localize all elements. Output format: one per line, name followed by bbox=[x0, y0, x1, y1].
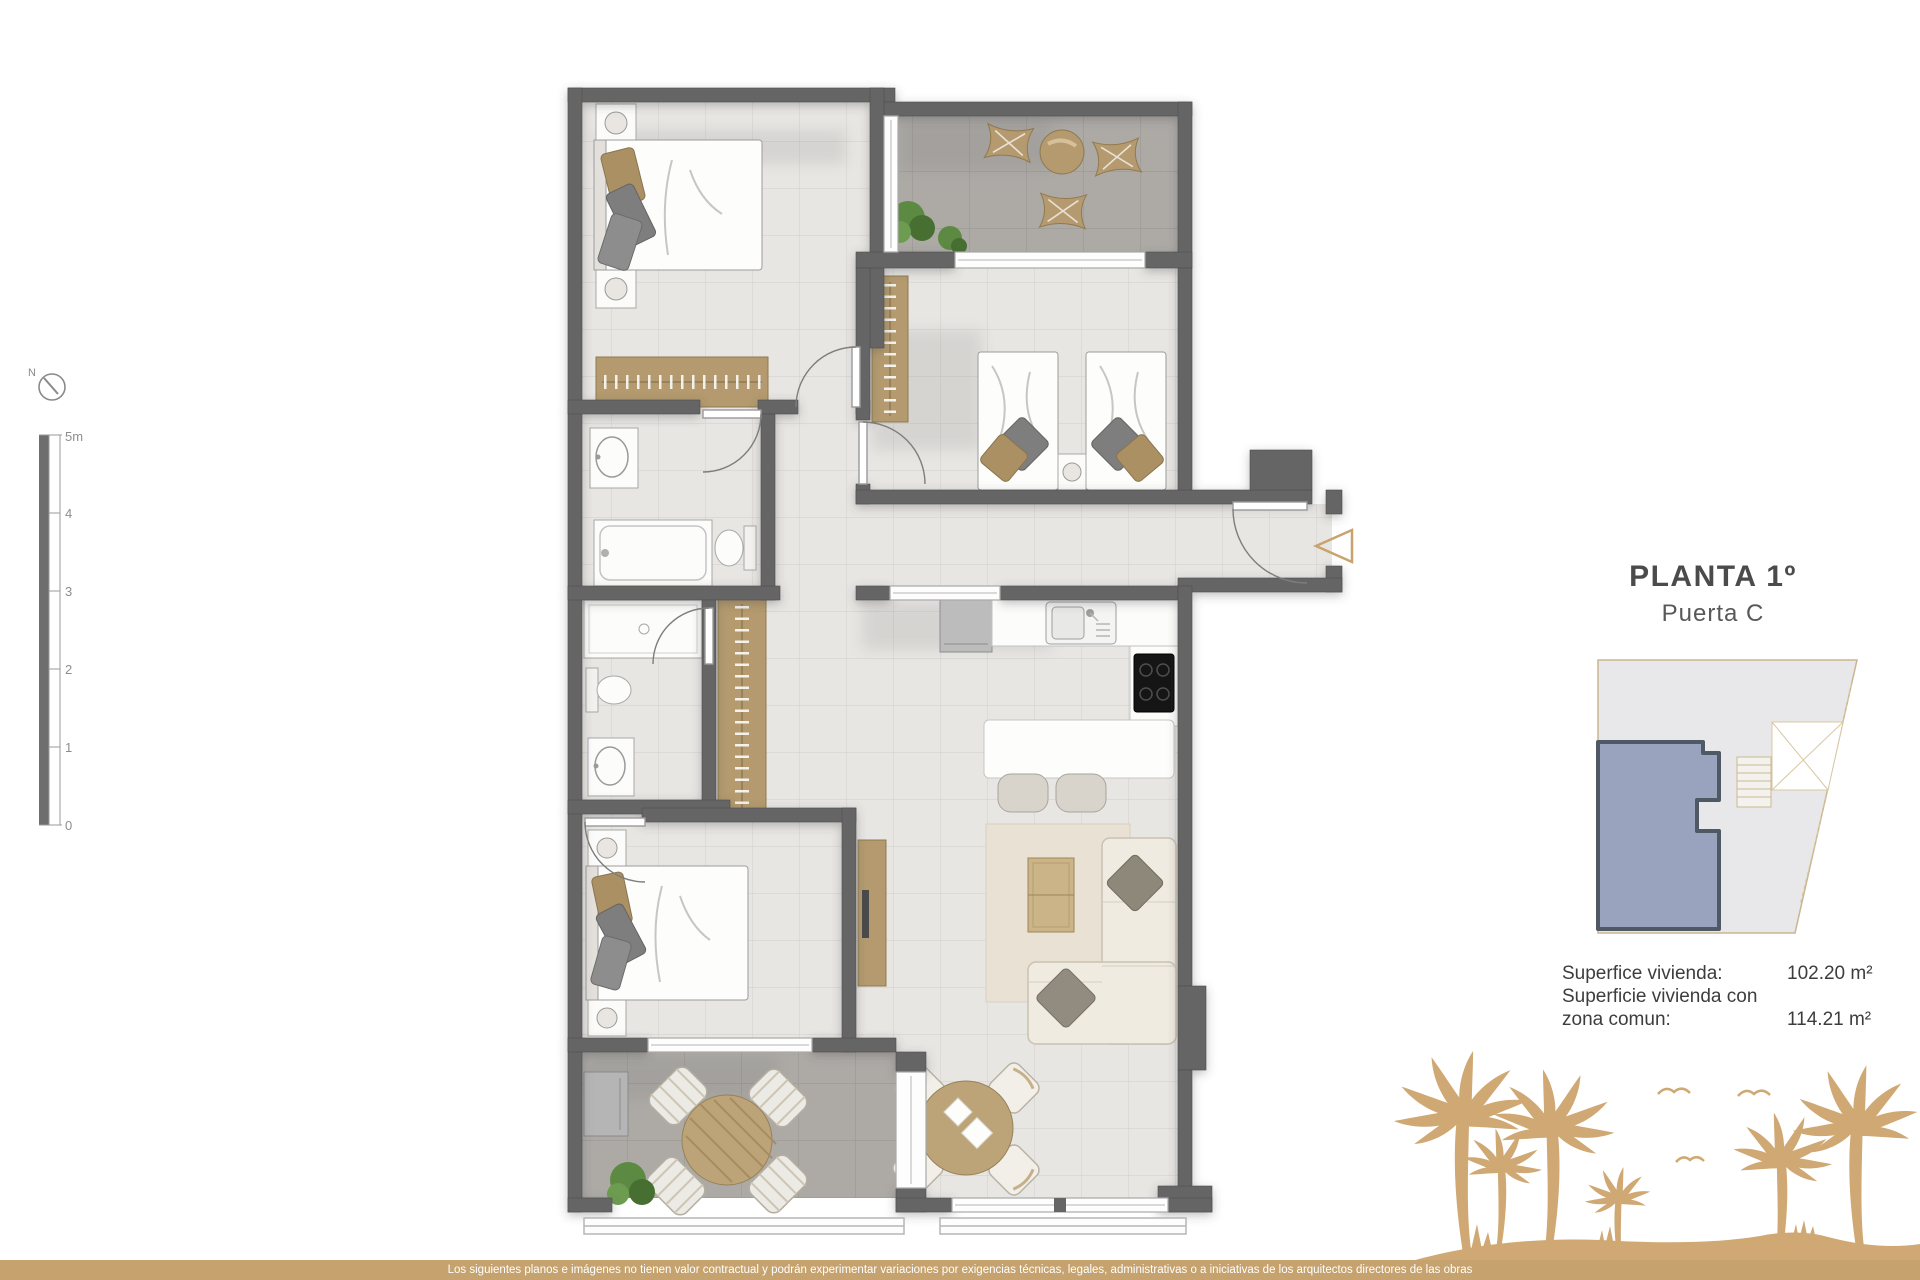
location-minimap bbox=[1598, 660, 1857, 933]
area-row: Superficie vivienda con bbox=[1562, 985, 1892, 1008]
island bbox=[984, 720, 1174, 778]
north-label: N bbox=[28, 367, 36, 379]
apartment-plan bbox=[568, 88, 1352, 1234]
bathtub bbox=[594, 520, 712, 586]
bedroom-1 bbox=[594, 104, 768, 407]
area-info: Superfice vivienda: 102.20 m² Superficie… bbox=[1562, 962, 1892, 1031]
plan-title: PLANTA 1º bbox=[1563, 560, 1863, 594]
double-bed bbox=[594, 140, 762, 272]
cooktop bbox=[1134, 654, 1174, 712]
footer-bar: Los siguientes planos e imágenes no tien… bbox=[0, 1260, 1920, 1280]
tv-sideboard bbox=[858, 840, 886, 986]
hall-wardrobe bbox=[718, 598, 766, 814]
page: 5m 4 3 2 1 0 N bbox=[0, 0, 1920, 1280]
title-block: PLANTA 1º Puerta C bbox=[1563, 560, 1863, 628]
entry-corridor-floor bbox=[1178, 504, 1332, 586]
scale-label: 3 bbox=[65, 584, 72, 599]
stool bbox=[998, 774, 1048, 812]
stairs bbox=[1737, 757, 1771, 807]
scale-label: 5m bbox=[65, 429, 83, 444]
area-row: zona comun: 114.21 m² bbox=[1562, 1008, 1892, 1031]
highlighted-unit bbox=[1598, 742, 1719, 929]
floor-plan-canvas: 5m 4 3 2 1 0 N bbox=[0, 0, 1920, 1280]
sink bbox=[1046, 602, 1116, 644]
washbasin bbox=[588, 738, 634, 796]
lounge-chair bbox=[1039, 193, 1086, 229]
palm-decoration bbox=[1394, 1050, 1920, 1266]
single-bed bbox=[978, 352, 1058, 490]
scale-label: 1 bbox=[65, 740, 72, 755]
palm-tree bbox=[1792, 1065, 1919, 1254]
area-label: zona comun: bbox=[1562, 1008, 1787, 1031]
window-jamb bbox=[1054, 1198, 1066, 1212]
scale-label: 4 bbox=[65, 506, 72, 521]
area-value: 114.21 m² bbox=[1787, 1008, 1892, 1031]
palm-tree bbox=[1462, 1128, 1542, 1247]
toilet bbox=[715, 526, 756, 570]
area-row: Superfice vivienda: 102.20 m² bbox=[1562, 962, 1892, 985]
plan-subtitle: Puerta C bbox=[1563, 600, 1863, 628]
disclaimer-text: Los siguientes planos e imágenes no tien… bbox=[0, 1260, 1920, 1280]
area-value bbox=[1787, 985, 1892, 1008]
coffee-table bbox=[1028, 858, 1074, 932]
stool bbox=[1056, 774, 1106, 812]
scale-label: 0 bbox=[65, 818, 72, 833]
washbasin bbox=[590, 428, 638, 488]
tv bbox=[862, 890, 869, 938]
double-bed bbox=[586, 866, 748, 1000]
wardrobe bbox=[596, 357, 768, 407]
scale-label: 2 bbox=[65, 662, 72, 677]
balcony-rails bbox=[584, 1218, 1186, 1234]
area-value: 102.20 m² bbox=[1787, 962, 1892, 985]
area-label: Superficie vivienda con bbox=[1562, 985, 1787, 1008]
ac-unit bbox=[584, 1072, 628, 1136]
round-table bbox=[1040, 130, 1084, 174]
area-label: Superfice vivienda: bbox=[1562, 962, 1787, 985]
scale-bar: 5m 4 3 2 1 0 bbox=[39, 429, 83, 833]
single-bed bbox=[1086, 352, 1166, 490]
north-compass: N bbox=[28, 367, 65, 400]
shower bbox=[584, 600, 702, 658]
